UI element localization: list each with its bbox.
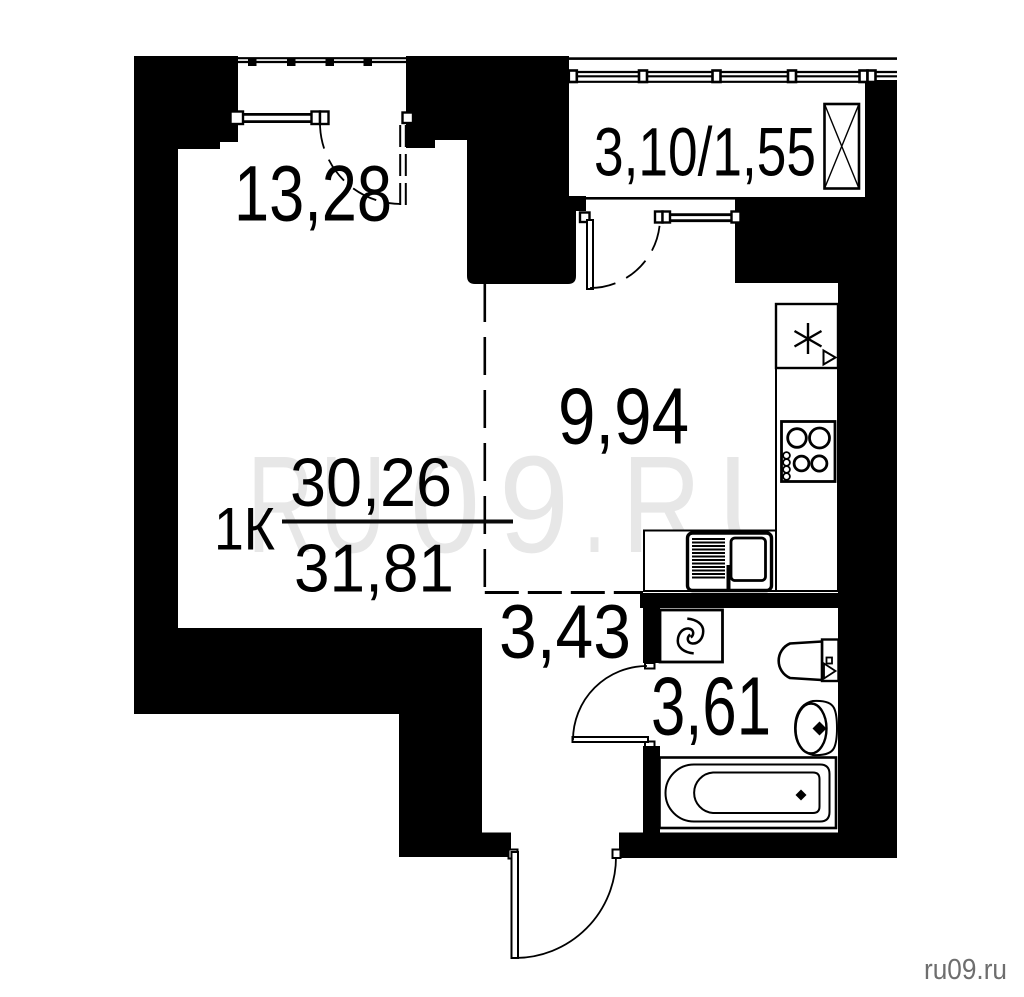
svg-text:3,10/1,55: 3,10/1,55 xyxy=(594,114,816,191)
svg-text:30,26: 30,26 xyxy=(290,444,452,521)
svg-text:1К: 1К xyxy=(214,496,275,563)
svg-text:ru09.ru: ru09.ru xyxy=(924,954,1007,986)
svg-text:13,28: 13,28 xyxy=(234,149,392,238)
svg-text:3,43: 3,43 xyxy=(499,590,631,675)
svg-text:3,61: 3,61 xyxy=(651,660,771,753)
svg-text:9,94: 9,94 xyxy=(558,372,689,461)
svg-text:31,81: 31,81 xyxy=(294,531,454,607)
